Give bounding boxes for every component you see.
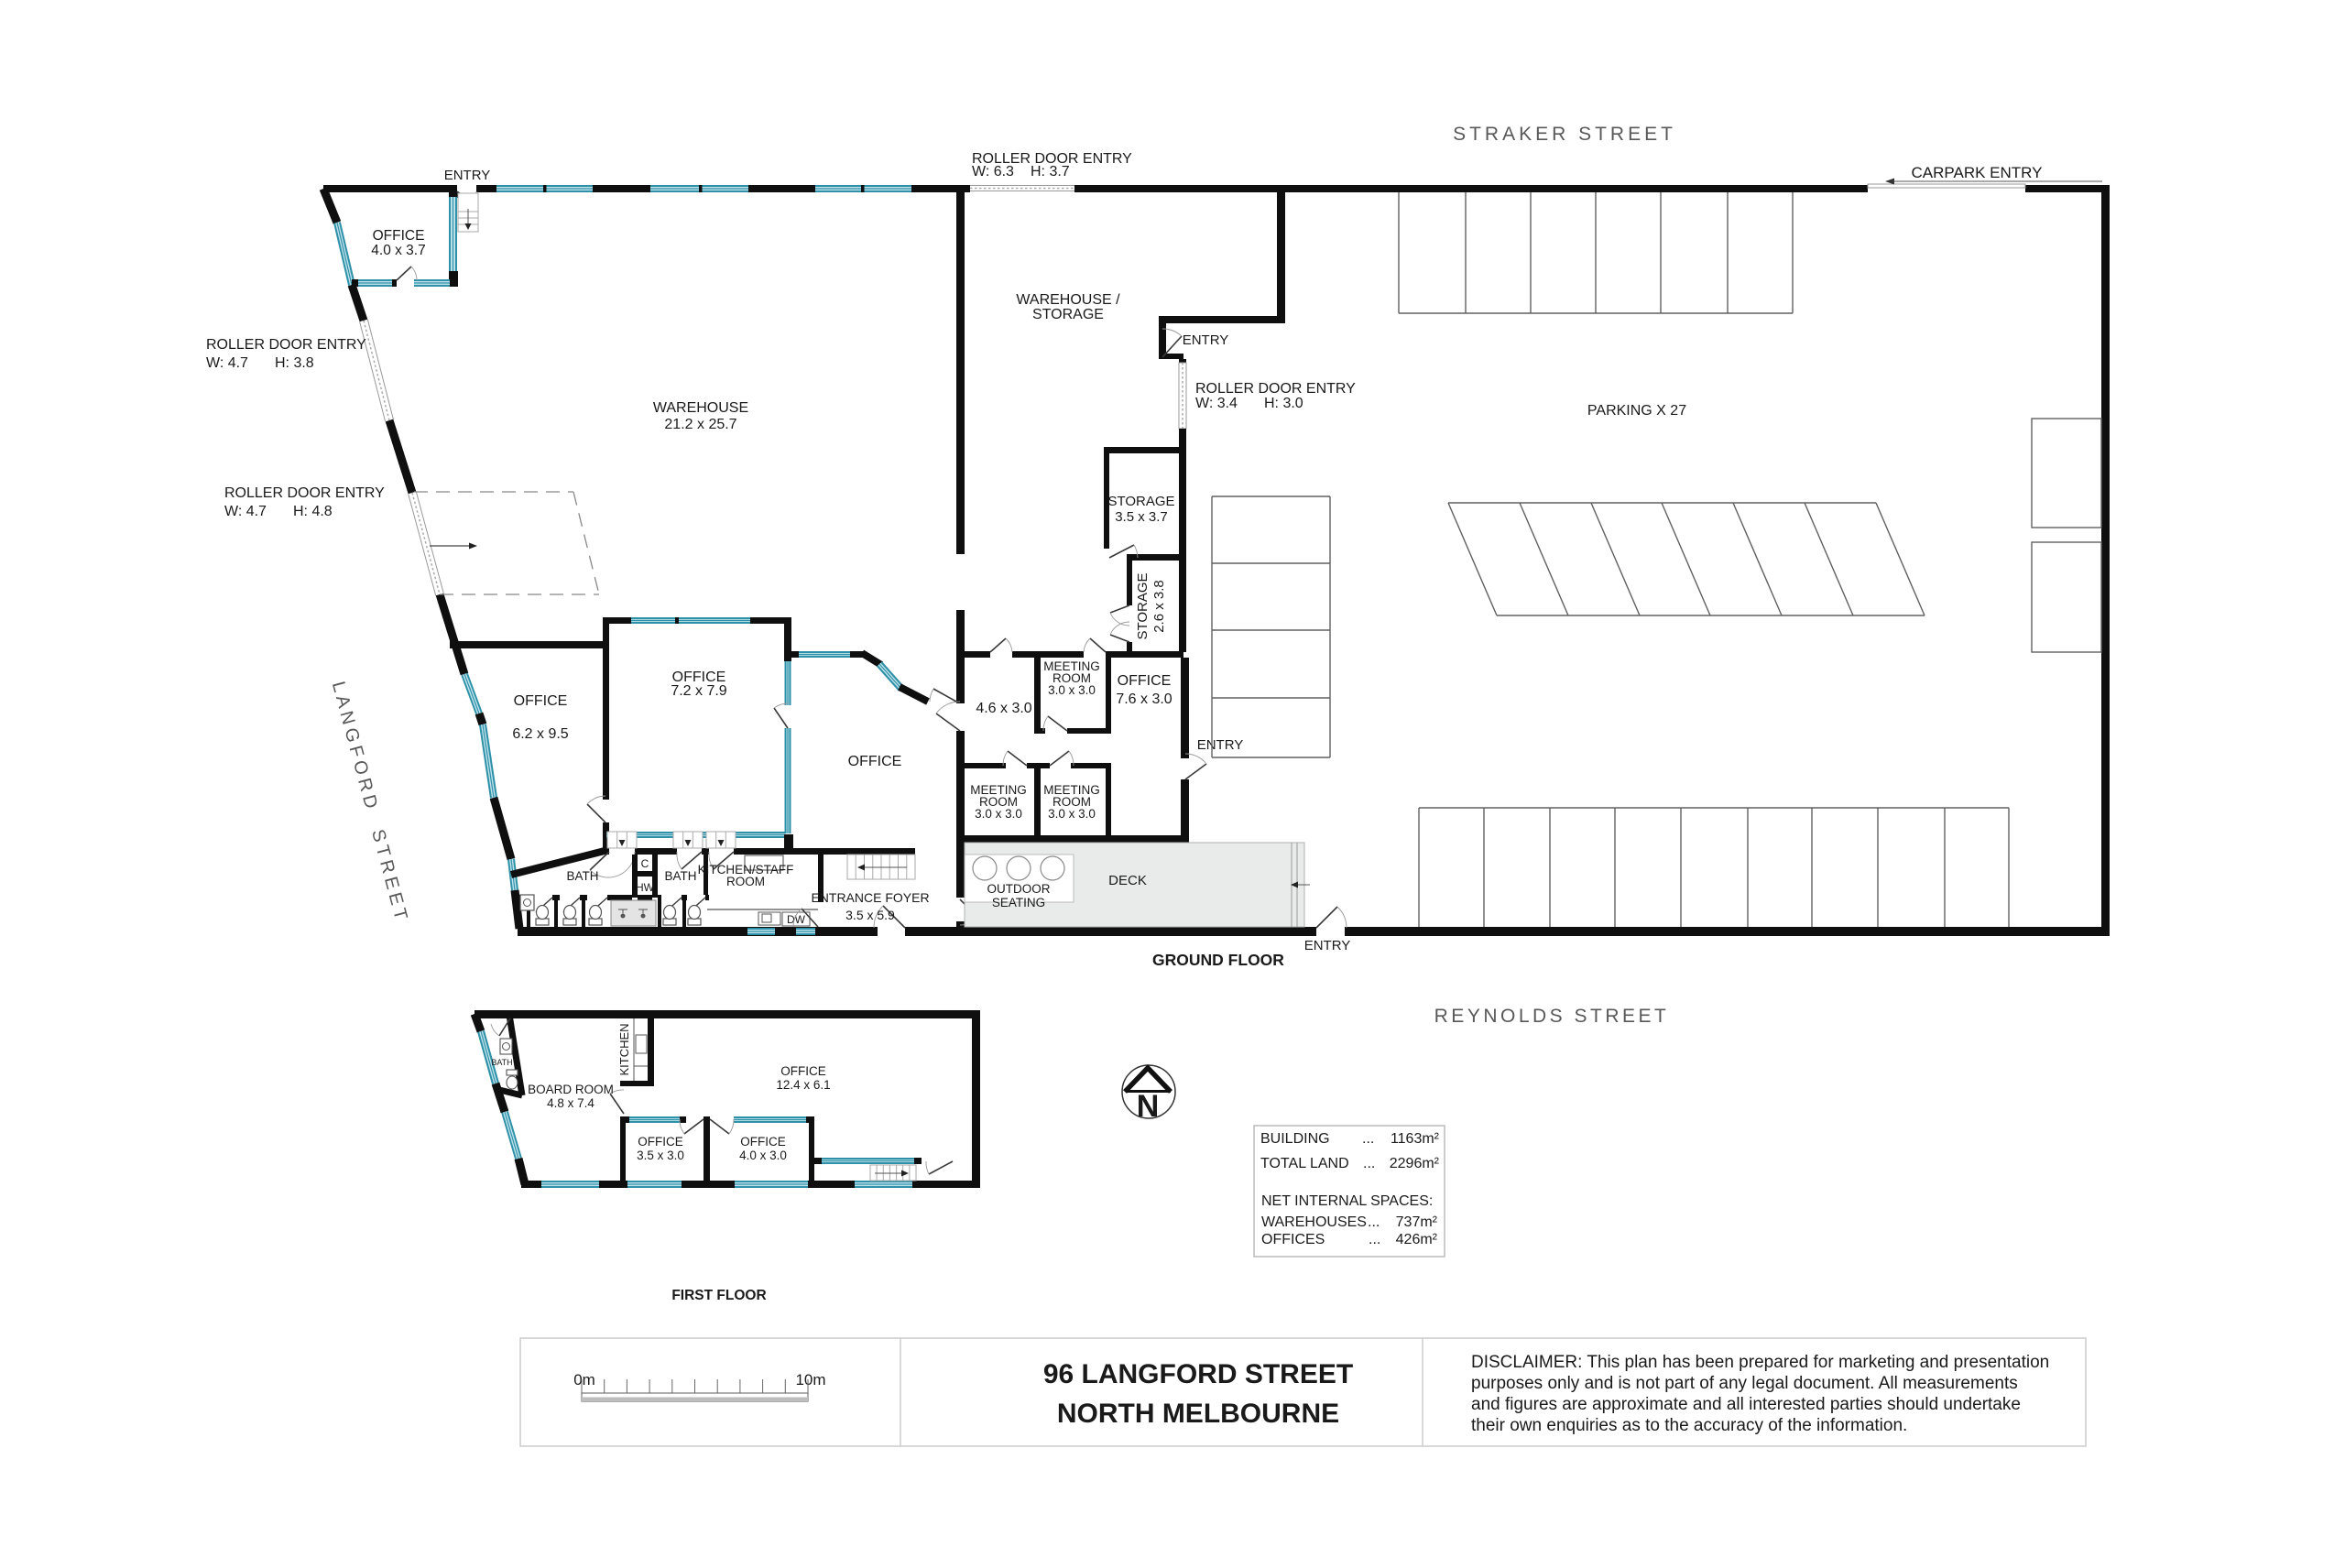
svg-text:C: C xyxy=(641,857,649,870)
svg-text:KITCHEN: KITCHEN xyxy=(617,1023,631,1075)
svg-text:7.2 x 7.9: 7.2 x 7.9 xyxy=(671,683,726,699)
svg-text:NET INTERNAL SPACES:: NET INTERNAL SPACES: xyxy=(1261,1193,1433,1209)
svg-text:purposes only and is not part: purposes only and is not part of any leg… xyxy=(1471,1374,2018,1393)
svg-text:6.2 x 9.5: 6.2 x 9.5 xyxy=(512,726,568,742)
svg-text:OFFICE: OFFICE xyxy=(780,1064,826,1078)
svg-text:NORTH MELBOURNE: NORTH MELBOURNE xyxy=(1057,1399,1339,1429)
svg-text:BATH: BATH xyxy=(491,1058,512,1067)
svg-text:TOTAL LAND: TOTAL LAND xyxy=(1260,1156,1349,1171)
svg-text:CARPARK ENTRY: CARPARK ENTRY xyxy=(1912,164,2043,181)
svg-text:3.0 x 3.0: 3.0 x 3.0 xyxy=(1048,683,1096,697)
svg-text:4.0 x 3.7: 4.0 x 3.7 xyxy=(371,243,425,258)
svg-text:ENTRY: ENTRY xyxy=(1183,332,1229,348)
svg-text:ENTRANCE FOYER: ENTRANCE FOYER xyxy=(811,890,929,905)
svg-text:W: 6.3: W: 6.3 xyxy=(972,164,1014,180)
svg-text:10m: 10m xyxy=(795,1371,825,1388)
svg-text:96 LANGFORD STREET: 96 LANGFORD STREET xyxy=(1043,1359,1353,1389)
svg-text:OUTDOOR: OUTDOOR xyxy=(987,882,1051,896)
svg-text:OFFICE: OFFICE xyxy=(514,693,568,709)
svg-text:BATH: BATH xyxy=(664,869,696,883)
svg-text:BATH: BATH xyxy=(566,869,598,883)
svg-text:N: N xyxy=(1137,1089,1160,1124)
svg-text:SEATING: SEATING xyxy=(992,896,1045,909)
svg-text:...: ... xyxy=(1368,1214,1380,1230)
svg-text:and figures are approximate an: and figures are approximate and all inte… xyxy=(1471,1395,2021,1414)
svg-text:2.6 x 3.8: 2.6 x 3.8 xyxy=(1151,580,1167,633)
svg-text:W: 4.7: W: 4.7 xyxy=(224,504,267,519)
svg-text:WAREHOUSES: WAREHOUSES xyxy=(1261,1214,1367,1230)
svg-text:OFFICE: OFFICE xyxy=(740,1135,786,1149)
svg-text:H: 3.8: H: 3.8 xyxy=(275,355,314,371)
svg-text:ROLLER DOOR ENTRY: ROLLER DOOR ENTRY xyxy=(1195,381,1356,397)
svg-text:OFFICE: OFFICE xyxy=(1118,673,1172,689)
svg-text:BUILDING: BUILDING xyxy=(1260,1131,1330,1147)
svg-text:7.6 x 3.0: 7.6 x 3.0 xyxy=(1116,691,1172,707)
svg-text:H: 4.8: H: 4.8 xyxy=(293,504,333,519)
svg-text:737m²: 737m² xyxy=(1396,1214,1438,1230)
svg-text:REYNOLDS STREET: REYNOLDS STREET xyxy=(1434,1006,1670,1027)
svg-text:WAREHOUSE /: WAREHOUSE / xyxy=(1016,292,1120,308)
svg-text:3.0 x 3.0: 3.0 x 3.0 xyxy=(1048,807,1096,821)
svg-text:OFFICE: OFFICE xyxy=(373,228,425,244)
svg-text:2296m²: 2296m² xyxy=(1390,1156,1440,1171)
svg-text:STORAGE: STORAGE xyxy=(1135,572,1151,639)
svg-text:PARKING X 27: PARKING X 27 xyxy=(1587,403,1686,419)
svg-text:HW: HW xyxy=(636,881,655,894)
svg-text:BOARD ROOM: BOARD ROOM xyxy=(528,1083,614,1096)
svg-text:FIRST FLOOR: FIRST FLOOR xyxy=(671,1288,766,1303)
svg-text:12.4 x 6.1: 12.4 x 6.1 xyxy=(776,1078,830,1092)
svg-text:DISCLAIMER: This plan has been: DISCLAIMER: This plan has been prepared … xyxy=(1471,1353,2049,1372)
svg-text:3.5 x 3.7: 3.5 x 3.7 xyxy=(1115,509,1168,525)
svg-text:STORAGE: STORAGE xyxy=(1107,494,1174,509)
svg-text:426m²: 426m² xyxy=(1396,1232,1438,1247)
svg-text:OFFICE: OFFICE xyxy=(848,754,902,769)
svg-text:4.0 x 3.0: 4.0 x 3.0 xyxy=(739,1149,787,1162)
svg-text:WAREHOUSE: WAREHOUSE xyxy=(653,400,748,416)
svg-text:ENTRY: ENTRY xyxy=(1304,938,1351,953)
svg-text:21.2 x 25.7: 21.2 x 25.7 xyxy=(664,417,736,432)
svg-text:ENTRY: ENTRY xyxy=(444,168,491,183)
svg-text:ENTRY: ENTRY xyxy=(1197,737,1244,753)
svg-text:ROLLER DOOR ENTRY: ROLLER DOOR ENTRY xyxy=(224,485,385,501)
svg-text:H: 3.7: H: 3.7 xyxy=(1031,164,1070,180)
svg-text:3.5 x 5.9: 3.5 x 5.9 xyxy=(845,908,895,922)
svg-text:STRAKER STREET: STRAKER STREET xyxy=(1453,124,1676,145)
svg-text:...: ... xyxy=(1369,1232,1380,1247)
svg-text:1163m²: 1163m² xyxy=(1391,1131,1440,1147)
svg-text:H: 3.0: H: 3.0 xyxy=(1264,396,1303,411)
svg-text:0m: 0m xyxy=(573,1371,595,1388)
svg-text:DECK: DECK xyxy=(1108,873,1147,888)
svg-text:3.0 x 3.0: 3.0 x 3.0 xyxy=(975,807,1022,821)
svg-text:4.8 x 7.4: 4.8 x 7.4 xyxy=(547,1096,594,1110)
svg-text:4.6 x 3.0: 4.6 x 3.0 xyxy=(976,701,1031,716)
svg-text:OFFICES: OFFICES xyxy=(1261,1232,1325,1247)
svg-text:...: ... xyxy=(1363,1156,1375,1171)
svg-text:W: 4.7: W: 4.7 xyxy=(206,355,248,371)
svg-text:...: ... xyxy=(1362,1131,1374,1147)
svg-text:their own enquiries as to the: their own enquiries as to the accuracy o… xyxy=(1471,1416,1907,1435)
svg-text:OFFICE: OFFICE xyxy=(638,1135,683,1149)
svg-text:STORAGE: STORAGE xyxy=(1032,307,1104,322)
svg-text:3.5 x 3.0: 3.5 x 3.0 xyxy=(637,1149,684,1162)
svg-text:ROOM: ROOM xyxy=(726,875,765,888)
svg-text:ROLLER DOOR ENTRY: ROLLER DOOR ENTRY xyxy=(206,337,366,353)
svg-text:W: 3.4: W: 3.4 xyxy=(1195,396,1238,411)
svg-text:GROUND FLOOR: GROUND FLOOR xyxy=(1152,951,1284,969)
